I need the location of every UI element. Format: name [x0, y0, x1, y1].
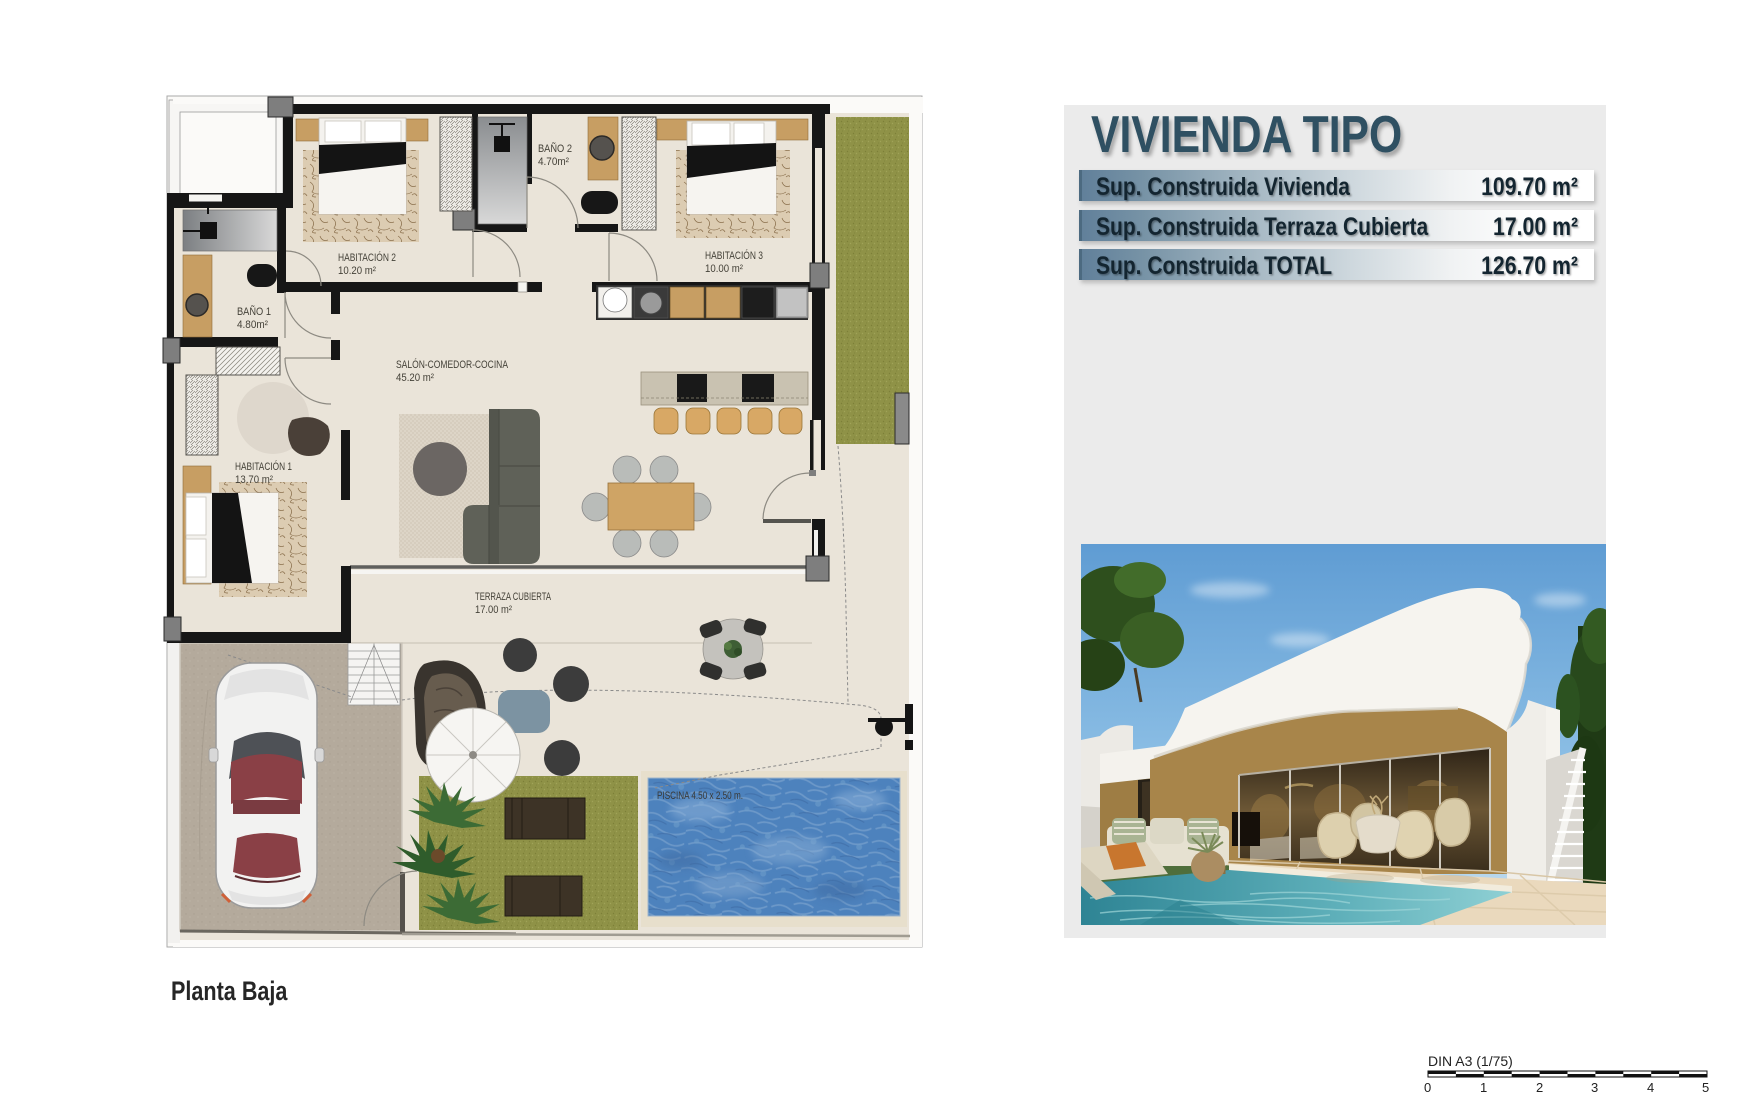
- svg-text:BAÑO 2: BAÑO 2: [538, 142, 572, 155]
- svg-text:10.00 m²: 10.00 m²: [705, 263, 743, 275]
- svg-text:1: 1: [1480, 1080, 1487, 1095]
- svg-text:10.20 m²: 10.20 m²: [338, 265, 376, 277]
- svg-text:PISCINA 4.50 x 2.50 m.: PISCINA 4.50 x 2.50 m.: [657, 790, 743, 802]
- svg-text:5: 5: [1702, 1080, 1709, 1095]
- svg-text:17.00 m²: 17.00 m²: [475, 604, 512, 616]
- svg-text:3: 3: [1591, 1080, 1598, 1095]
- svg-text:2: 2: [1536, 1080, 1543, 1095]
- svg-text:DIN A3 (1/75): DIN A3 (1/75): [1428, 1053, 1513, 1069]
- svg-text:BAÑO 1: BAÑO 1: [237, 305, 271, 318]
- svg-text:HABITACIÓN 2: HABITACIÓN 2: [338, 251, 396, 264]
- svg-text:4.80m²: 4.80m²: [237, 319, 268, 331]
- svg-text:13.70 m²: 13.70 m²: [235, 474, 273, 486]
- svg-text:4.70m²: 4.70m²: [538, 156, 569, 168]
- svg-text:TERRAZA CUBIERTA: TERRAZA CUBIERTA: [475, 591, 551, 603]
- svg-text:45.20 m²: 45.20 m²: [396, 372, 434, 384]
- svg-text:4: 4: [1647, 1080, 1654, 1095]
- svg-text:HABITACIÓN 3: HABITACIÓN 3: [705, 249, 763, 262]
- svg-text:HABITACIÓN 1: HABITACIÓN 1: [235, 460, 292, 473]
- svg-text:0: 0: [1424, 1080, 1431, 1095]
- svg-text:SALÓN-COMEDOR-COCINA: SALÓN-COMEDOR-COCINA: [396, 358, 509, 371]
